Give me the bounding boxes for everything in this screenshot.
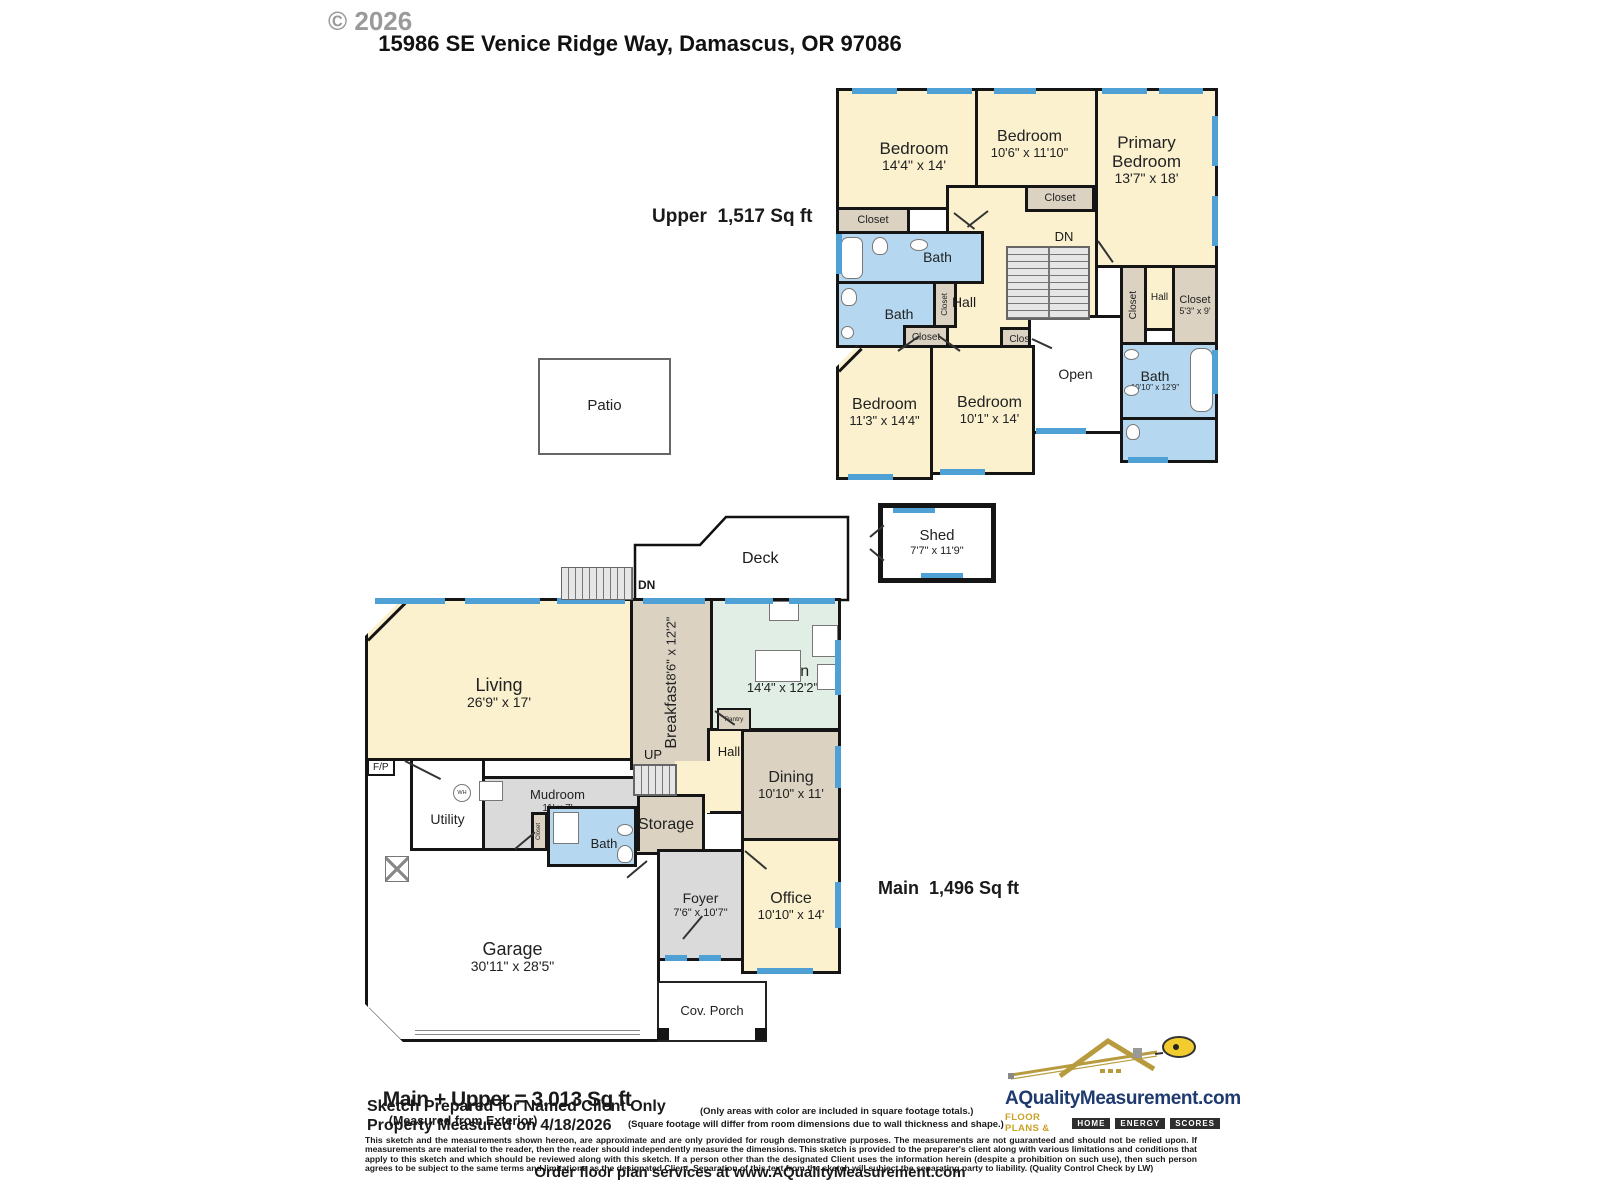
window-icon bbox=[835, 640, 841, 695]
room-name-label: Mudroom bbox=[530, 788, 585, 803]
window-icon bbox=[465, 598, 540, 604]
sink-icon bbox=[910, 239, 928, 251]
room-dining: Dining 10'10" x 11' bbox=[741, 729, 841, 841]
room-name-label: Breakfast bbox=[663, 681, 681, 749]
window-icon bbox=[665, 955, 687, 961]
room-name-label: Bath bbox=[1141, 369, 1170, 385]
window-icon bbox=[757, 968, 813, 974]
prepared-label: Sketch Prepared for Named Client Only bbox=[367, 1098, 666, 1116]
room-name-label: Shed bbox=[919, 528, 954, 545]
stairs-down bbox=[1006, 246, 1090, 320]
window-icon bbox=[643, 598, 705, 604]
room-name-label: Bedroom bbox=[997, 128, 1062, 146]
sink-icon bbox=[841, 326, 854, 339]
window-icon bbox=[893, 508, 935, 513]
window-icon bbox=[835, 882, 841, 928]
logo-domain-text: AQualityMeasurement.com bbox=[1005, 1088, 1220, 1110]
upper-area-label: Upper 1,517 Sq ft bbox=[652, 206, 813, 228]
dn-label: DN bbox=[1040, 229, 1088, 244]
open-to-below-area: Open bbox=[1028, 315, 1123, 434]
room-primary-bedroom: Primary Bedroom 13'7" x 18' bbox=[1095, 88, 1218, 268]
sink-icon bbox=[1124, 385, 1139, 396]
shed-area: Shed 7'7" x 11'9" bbox=[878, 503, 996, 583]
room-name-label: Closet bbox=[857, 214, 888, 226]
room-name-label: Garage bbox=[482, 939, 542, 959]
room-name-label: Primary Bedroom bbox=[1102, 133, 1192, 171]
room-name-label: Closet bbox=[1128, 291, 1139, 319]
floor-plan-upper: Bedroom 14'4" x 14' Bedroom 10'6" x 11'1… bbox=[836, 88, 1218, 480]
angled-wall bbox=[367, 1007, 407, 1047]
room-bedroom-c: Bedroom 11'3" x 14'4" bbox=[836, 345, 933, 480]
covered-porch-area: Cov. Porch bbox=[657, 981, 767, 1042]
order-services-label: Order floor plan services at www.AQualit… bbox=[400, 1164, 1100, 1181]
toilet-icon bbox=[872, 237, 888, 255]
window-icon bbox=[789, 598, 835, 604]
floor-plan-main: Garage 30'11" x 28'5" Living 26'9" x 17'… bbox=[365, 598, 841, 1042]
room-bedroom-d: Bedroom 10'1" x 14' bbox=[930, 345, 1035, 475]
room-pantry: Pantry bbox=[717, 708, 751, 731]
stove-icon bbox=[769, 601, 799, 621]
window-icon bbox=[940, 469, 985, 475]
window-icon bbox=[375, 598, 445, 604]
room-name-label: Closet bbox=[1044, 192, 1075, 204]
room-name-label: Foyer bbox=[683, 891, 719, 907]
closet-bedroom-b: Closet bbox=[1025, 185, 1095, 212]
sink-icon bbox=[817, 664, 837, 690]
window-icon bbox=[725, 598, 773, 604]
window-icon bbox=[1102, 88, 1147, 94]
logo-roof-tape-icon bbox=[1005, 1030, 1215, 1082]
closet-bedroom-a: Closet bbox=[836, 207, 910, 234]
room-name-label: Living bbox=[475, 675, 522, 695]
logo-tagline-text: FLOOR PLANS & bbox=[1005, 1112, 1067, 1134]
room-dims-label: 8'6" x 12'2" bbox=[664, 617, 679, 681]
porch-post bbox=[657, 1028, 669, 1040]
toilet-icon bbox=[841, 288, 857, 306]
window-icon bbox=[1212, 350, 1218, 394]
company-logo: AQualityMeasurement.com FLOOR PLANS & HO… bbox=[1005, 1030, 1220, 1134]
floor-plan-sheet: © 2026 15986 SE Venice Ridge Way, Damasc… bbox=[0, 0, 1600, 1200]
room-name-label: Storage bbox=[638, 816, 694, 834]
closet-sized: Closet 5'3" x 9' bbox=[1172, 265, 1218, 345]
main-area-label: Main 1,496 Sq ft bbox=[878, 878, 1019, 899]
room-breakfast: Breakfast 8'6" x 12'2" bbox=[630, 598, 713, 770]
room-bedroom-b: Bedroom 10'6" x 11'10" bbox=[975, 88, 1098, 188]
room-name-label: Bath bbox=[591, 837, 618, 852]
window-icon bbox=[1212, 116, 1218, 166]
room-name-label: Open bbox=[1058, 367, 1092, 383]
room-dims-label: 13'7" x 18' bbox=[1114, 171, 1178, 187]
room-name-label: Cov. Porch bbox=[680, 1004, 743, 1019]
logo-badge-home: HOME bbox=[1072, 1118, 1110, 1129]
deck-stairs-icon bbox=[561, 567, 633, 600]
logo-tagline-row: FLOOR PLANS & HOME ENERGY SCORES bbox=[1005, 1112, 1220, 1134]
room-foyer: Foyer 7'6" x 10'7" bbox=[657, 849, 744, 961]
garage-door-icon bbox=[415, 1030, 640, 1035]
window-icon bbox=[994, 88, 1036, 94]
hall-label: Hall bbox=[940, 294, 988, 310]
room-dims-label: 14'4" x 12'2" bbox=[747, 681, 818, 696]
room-name-label: Utility bbox=[430, 812, 464, 828]
patio-area: Patio bbox=[538, 358, 671, 455]
room-dims-label: 10'10" x 14' bbox=[758, 908, 825, 923]
room-name-label: Bedroom bbox=[957, 394, 1022, 412]
room-name-label: Bedroom bbox=[880, 139, 949, 158]
window-icon bbox=[1212, 196, 1218, 246]
room-dims-label: 10'6" x 11'10" bbox=[991, 146, 1069, 161]
room-dims-label: 30'11" x 28'5" bbox=[471, 959, 555, 975]
room-dims-label: 5'3" x 9' bbox=[1179, 306, 1210, 316]
sink-icon bbox=[1124, 349, 1139, 360]
room-name-label: Patio bbox=[587, 398, 621, 415]
porch-post bbox=[755, 1028, 767, 1040]
toilet-icon bbox=[617, 845, 633, 863]
room-dims-label: 10'10" x 11' bbox=[758, 787, 824, 802]
room-name-label: Bath bbox=[923, 250, 952, 266]
angled-wall bbox=[838, 348, 863, 373]
window-icon bbox=[1036, 428, 1086, 434]
window-icon bbox=[848, 474, 893, 480]
color-note: (Only areas with color are included in s… bbox=[700, 1106, 973, 1117]
bathtub-icon bbox=[841, 237, 863, 279]
deck-dn-label: DN bbox=[638, 578, 655, 592]
window-icon bbox=[921, 573, 963, 578]
window-icon bbox=[835, 746, 841, 788]
room-name-label: Office bbox=[770, 890, 812, 908]
shower-icon bbox=[553, 812, 579, 844]
stairs-up bbox=[633, 764, 677, 796]
room-dims-label: 7'7" x 11'9" bbox=[910, 545, 963, 557]
room-dims-label: 14'4" x 14' bbox=[882, 158, 946, 174]
window-icon bbox=[699, 955, 721, 961]
upper-hall-2: Hall bbox=[1144, 265, 1175, 331]
logo-badge-scores: SCORES bbox=[1170, 1118, 1220, 1129]
furnace-icon bbox=[385, 856, 409, 882]
up-label: UP bbox=[631, 747, 675, 762]
room-dims-label: 10'1" x 14' bbox=[960, 412, 1019, 427]
window-icon bbox=[927, 88, 972, 94]
closet-primary-1: Closet bbox=[1120, 265, 1147, 345]
window-icon bbox=[1128, 457, 1168, 463]
bench-icon bbox=[479, 781, 503, 801]
logo-badge-energy: ENERGY bbox=[1115, 1118, 1165, 1129]
fireplace-label: F/P bbox=[367, 759, 395, 776]
window-icon bbox=[1159, 88, 1203, 94]
toilet-icon bbox=[1126, 424, 1140, 440]
room-name-label: Bath bbox=[885, 307, 914, 323]
sink-icon bbox=[617, 824, 633, 836]
room-living: Living 26'9" x 17' bbox=[365, 598, 633, 761]
room-name-label: Bedroom bbox=[852, 396, 917, 414]
sqft-note: (Square footage will differ from room di… bbox=[628, 1119, 1004, 1130]
room-name-label: Dining bbox=[768, 769, 813, 787]
water-heater-icon: WH bbox=[453, 784, 471, 802]
kitchen-island-icon bbox=[755, 650, 801, 682]
deck-label: Deck bbox=[742, 550, 778, 568]
room-dims-label: 11'3" x 14'4" bbox=[849, 414, 919, 429]
page-title: 15986 SE Venice Ridge Way, Damascus, OR … bbox=[330, 31, 950, 57]
room-name-label: Closet bbox=[536, 823, 543, 840]
room-utility: Utility bbox=[410, 758, 485, 851]
angled-wall bbox=[367, 601, 408, 642]
window-icon bbox=[836, 234, 842, 274]
hall-label: Hall bbox=[707, 744, 751, 759]
room-dims-label: 26'9" x 17' bbox=[467, 695, 531, 711]
room-name-label: Closet bbox=[1179, 294, 1210, 306]
room-name-label: Hall bbox=[1151, 292, 1168, 303]
measured-label: Property Measured on 4/18/2026 bbox=[367, 1117, 612, 1135]
bathtub-icon bbox=[1190, 348, 1213, 412]
window-icon bbox=[852, 88, 897, 94]
stairs-divider bbox=[1048, 248, 1050, 318]
